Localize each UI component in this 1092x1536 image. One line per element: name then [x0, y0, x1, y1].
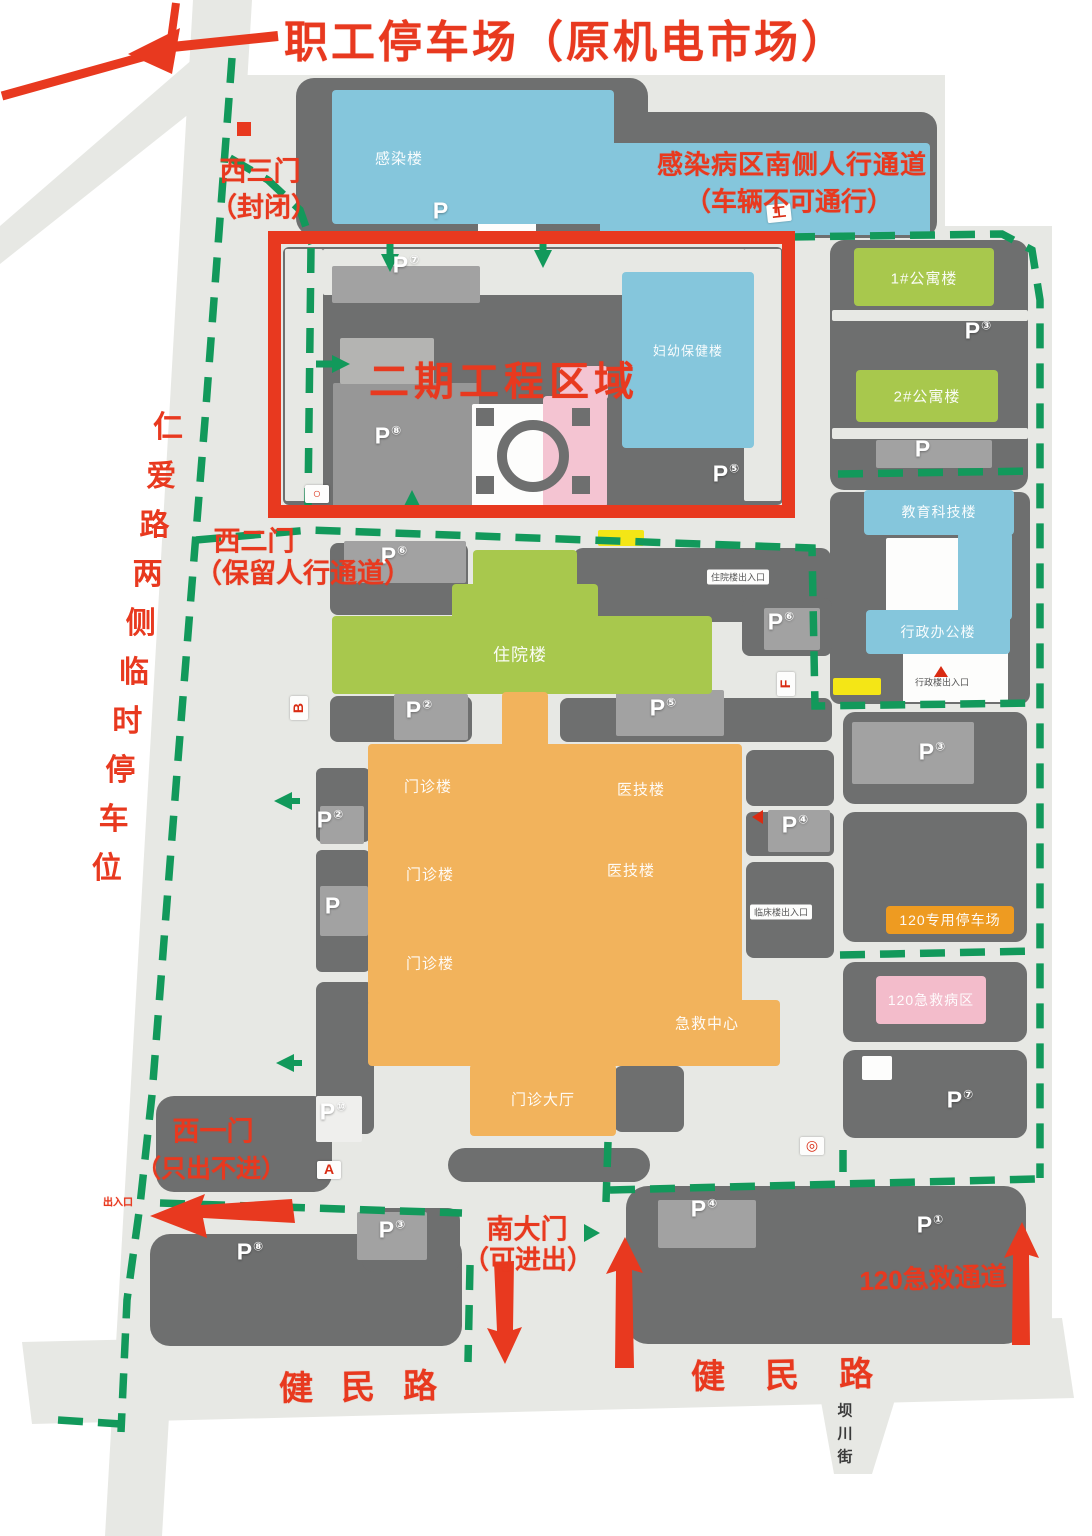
parking-number: ③ [395, 1218, 405, 1232]
staff-parking-arrow-line [2, 52, 160, 96]
staff-parking-arrowhead [128, 28, 180, 74]
parking-letter: P [768, 609, 783, 635]
parking-number: ② [422, 698, 432, 712]
zone-tag: ◎ [800, 1137, 824, 1155]
parking-icon: P⑥ [768, 609, 795, 636]
zone-tag: F [777, 672, 795, 696]
parking-number: ⑤ [666, 696, 676, 710]
parking-icon: P⑧ [237, 1239, 264, 1266]
renai-road-parking-char: 路 [139, 500, 169, 544]
parking-number: ⑤ [729, 462, 739, 476]
emergency-route-arrow [1004, 1222, 1039, 1345]
zone-tag: A [317, 1161, 341, 1179]
west-gate-3-note: （封闭） [210, 186, 318, 225]
parking-letter: P [917, 1212, 932, 1238]
parking-letter: P [375, 423, 390, 449]
parking-icon: P③ [379, 1217, 406, 1244]
hospital-campus-map: 感染楼妇幼保健楼1#公寓楼2#公寓楼教育科技楼行政办公楼住院楼120专用停车场1… [0, 0, 1092, 1536]
parking-letter: P [947, 1087, 962, 1113]
parking-letter: P [379, 1217, 394, 1243]
entrance-label: 临床楼出入口 [750, 905, 812, 920]
parking-icon: P③ [965, 318, 992, 345]
parking-number: ③ [981, 319, 991, 333]
parking-icon: P⑤ [713, 461, 740, 488]
bachuan-street-char: 坝 [837, 1400, 852, 1421]
parking-letter: P [325, 893, 340, 919]
parking-letter: P [433, 198, 448, 224]
staff-parking-arrow-line [172, 36, 278, 47]
bachuan-street-char: 街 [837, 1446, 852, 1467]
west-gate-1-exit-tiny: 出入口 [103, 1194, 133, 1209]
parking-number: ⑥ [784, 610, 794, 624]
renai-road-parking-char: 停 [105, 745, 135, 789]
infection-note-line2: （车辆不可通行） [685, 182, 893, 219]
parking-icon: P⑦ [393, 252, 420, 279]
west-gate-2-note: （保留人行通道） [195, 552, 411, 591]
parking-number: ④ [707, 1197, 717, 1211]
renai-road-parking-char: 车 [99, 794, 129, 838]
parking-icon: P [325, 893, 341, 920]
west-gate-1: 西一门 [173, 1110, 254, 1149]
square-marker [237, 122, 251, 136]
parking-icon: P [915, 436, 931, 463]
parking-number: ⑦ [409, 253, 419, 267]
renai-road-parking-char: 仁 [153, 402, 183, 446]
parking-icon: P② [406, 697, 433, 724]
parking-letter: P [919, 739, 934, 765]
renai-road-parking-char: 时 [112, 696, 142, 740]
parking-icon: P [433, 198, 449, 225]
parking-number: ② [333, 808, 343, 822]
parking-letter: P [782, 812, 797, 838]
parking-icon: P④ [691, 1196, 718, 1223]
parking-letter: P [965, 318, 980, 344]
parking-number: ⑧ [253, 1240, 263, 1254]
bachuan-street-char: 川 [837, 1423, 852, 1444]
parking-letter: P [237, 1239, 252, 1265]
zone-tag: B [290, 696, 308, 720]
zone-tag: ○ [305, 485, 329, 503]
parking-number: ⑩ [336, 1100, 346, 1114]
parking-letter: P [317, 807, 332, 833]
renai-road-parking-char: 爱 [146, 451, 176, 495]
parking-letter: P [713, 461, 728, 487]
jianmin-road-east: 健民路 [691, 1346, 914, 1399]
parking-icon: P⑩ [320, 1099, 347, 1126]
parking-icon: P④ [782, 812, 809, 839]
parking-icon: P① [917, 1212, 944, 1239]
renai-road-parking-char: 位 [92, 843, 122, 887]
parking-letter: P [320, 1099, 335, 1125]
phase2-zone-label: 二期工程区域 [369, 349, 639, 407]
parking-letter: P [915, 436, 930, 462]
west-gate-1-note: （只出不进） [136, 1149, 286, 1185]
parking-letter: P [650, 695, 665, 721]
renai-road-parking-char: 临 [119, 647, 149, 691]
entrance-label: 行政楼出入口 [915, 676, 969, 689]
parking-number: ⑦ [963, 1088, 973, 1102]
parking-number: ④ [798, 813, 808, 827]
south-gate-note: （可进出） [463, 1240, 593, 1277]
parking-icon: P② [317, 807, 344, 834]
parking-icon: P③ [919, 739, 946, 766]
renai-road-parking-char: 侧 [126, 598, 156, 642]
infection-note-line1: 感染病区南侧人行通道 [657, 145, 927, 182]
west-gate-3: 西三门 [220, 150, 301, 189]
south-gate-enter-arrow [606, 1237, 643, 1368]
parking-number: ① [933, 1213, 943, 1227]
parking-letter: P [393, 252, 408, 278]
parking-number: ③ [935, 740, 945, 754]
parking-number: ⑧ [391, 424, 401, 438]
parking-icon: P⑧ [375, 423, 402, 450]
jianmin-road-west: 健民路 [279, 1358, 466, 1410]
parking-icon: P⑦ [947, 1087, 974, 1114]
entrance-label: 住院楼出入口 [707, 570, 769, 585]
emergency-route-label: 120急救通道 [859, 1256, 1008, 1298]
parking-letter: P [691, 1196, 706, 1222]
tri-left-marker [752, 810, 763, 824]
parking-icon: P⑤ [650, 695, 677, 722]
staff-parking-title: 职工停车场（原机电市场） [284, 6, 848, 70]
renai-road-parking-char: 两 [133, 549, 163, 593]
parking-letter: P [406, 697, 421, 723]
